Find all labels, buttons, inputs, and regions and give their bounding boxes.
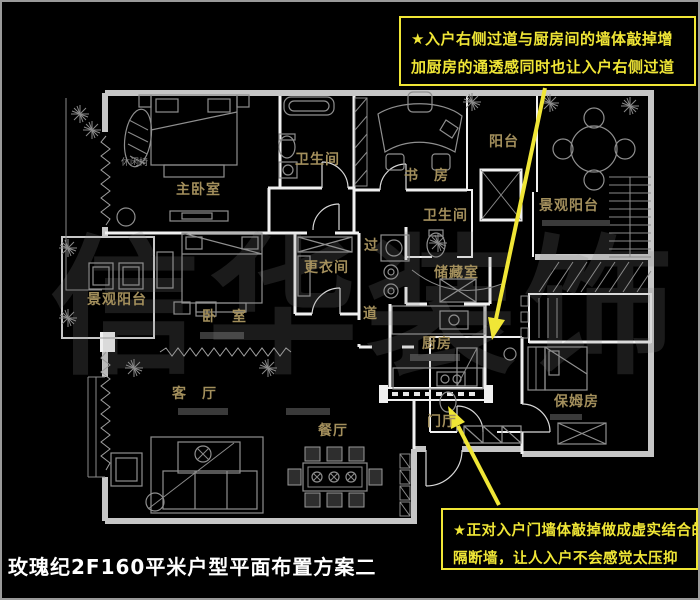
room-label-hall-bath: 卫生间 bbox=[423, 209, 468, 223]
room-label-corridor-char1: 过 bbox=[364, 239, 379, 253]
floorplan-image: 信华装饰 主卧室 卫生间 书 房 阳台 景观阳台 卫生间 过 道 更衣间 储藏室… bbox=[0, 0, 700, 600]
study-furniture bbox=[378, 92, 462, 170]
room-label-study: 书 房 bbox=[404, 169, 449, 183]
room-label-dining-room: 餐厅 bbox=[318, 424, 348, 438]
annotation-top-line1: ★入户右侧过道与厨房间的墙体敲掉增 bbox=[411, 25, 684, 53]
room-label-living-room: 客 厅 bbox=[172, 387, 217, 401]
room-label-foyer: 门厅 bbox=[427, 415, 457, 429]
room-label-master-bath: 卫生间 bbox=[295, 153, 340, 167]
annotation-bottom-line2: 隔断墙，让人入户不会感觉太压抑 bbox=[453, 545, 686, 573]
annotation-top-line2: 加厨房的通透感同时也让入户右侧过道 bbox=[411, 53, 684, 81]
room-label-dressing-room: 更衣间 bbox=[304, 261, 349, 275]
dining-table-set bbox=[288, 447, 382, 507]
annotation-top-note: ★入户右侧过道与厨房间的墙体敲掉增 加厨房的通透感同时也让入户右侧过道 bbox=[399, 16, 696, 86]
furniture-label-lounge-chair: 休闲椅 bbox=[121, 159, 148, 168]
room-label-kitchen: 厨房 bbox=[422, 337, 452, 351]
room-label-master-bedroom: 主卧室 bbox=[176, 183, 221, 197]
room-label-storage-room: 储藏室 bbox=[434, 266, 479, 280]
plan-title: 玫瑰纪2F160平米户型平面布置方案二 bbox=[8, 551, 376, 580]
room-label-corridor-char2: 道 bbox=[363, 307, 378, 321]
room-label-balcony: 阳台 bbox=[489, 135, 519, 149]
room-label-view-balcony-right: 景观阳台 bbox=[539, 199, 599, 213]
foyer-furniture bbox=[464, 423, 606, 444]
room-label-view-balcony-left: 景观阳台 bbox=[87, 293, 147, 307]
room-label-bedroom: 卧 室 bbox=[202, 310, 247, 324]
annotation-bottom-line1: ★正对入户门墙体敲掉做成虚实结合的 bbox=[453, 517, 686, 545]
living-room-furniture bbox=[111, 408, 330, 513]
annotation-bottom-note: ★正对入户门墙体敲掉做成虚实结合的 隔断墙，让人入户不会感觉太压抑 bbox=[441, 508, 698, 570]
room-label-nanny-room: 保姆房 bbox=[554, 395, 599, 409]
